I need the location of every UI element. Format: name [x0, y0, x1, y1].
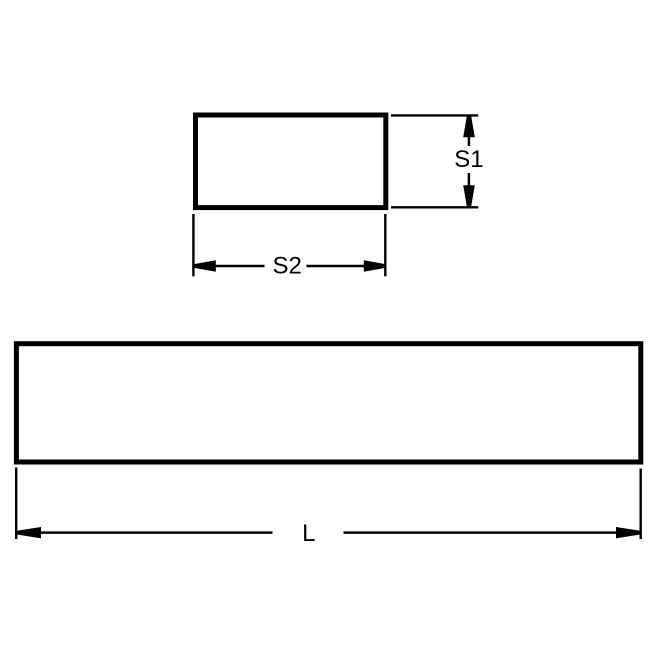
svg-text:S2: S2 [273, 253, 302, 280]
svg-text:S1: S1 [454, 146, 483, 173]
svg-text:L: L [302, 520, 315, 547]
